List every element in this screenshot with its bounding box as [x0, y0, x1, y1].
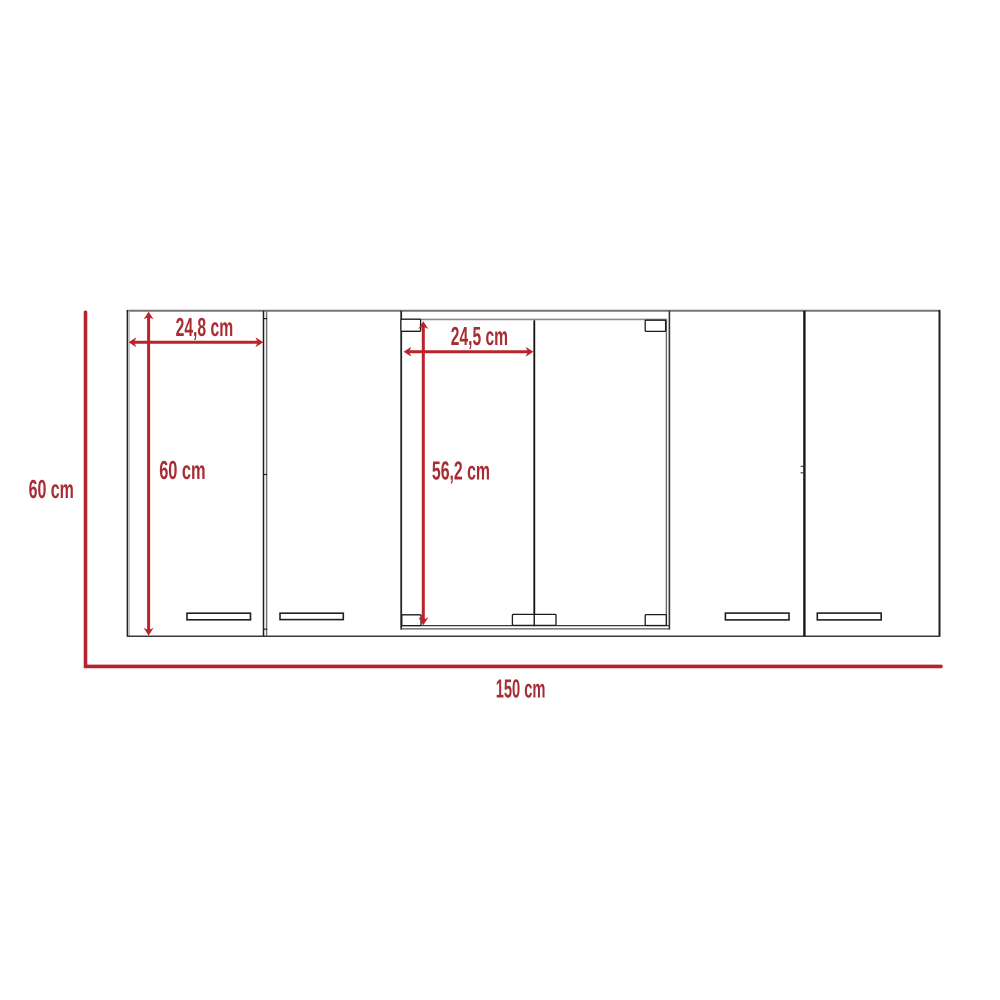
svg-text:60 cm: 60 cm [29, 474, 74, 504]
svg-text:56,2 cm: 56,2 cm [432, 455, 490, 485]
svg-text:24,8 cm: 24,8 cm [176, 312, 234, 342]
svg-text:60 cm: 60 cm [159, 455, 205, 485]
svg-text:24,5 cm: 24,5 cm [451, 321, 508, 351]
svg-text:150 cm: 150 cm [496, 673, 546, 703]
